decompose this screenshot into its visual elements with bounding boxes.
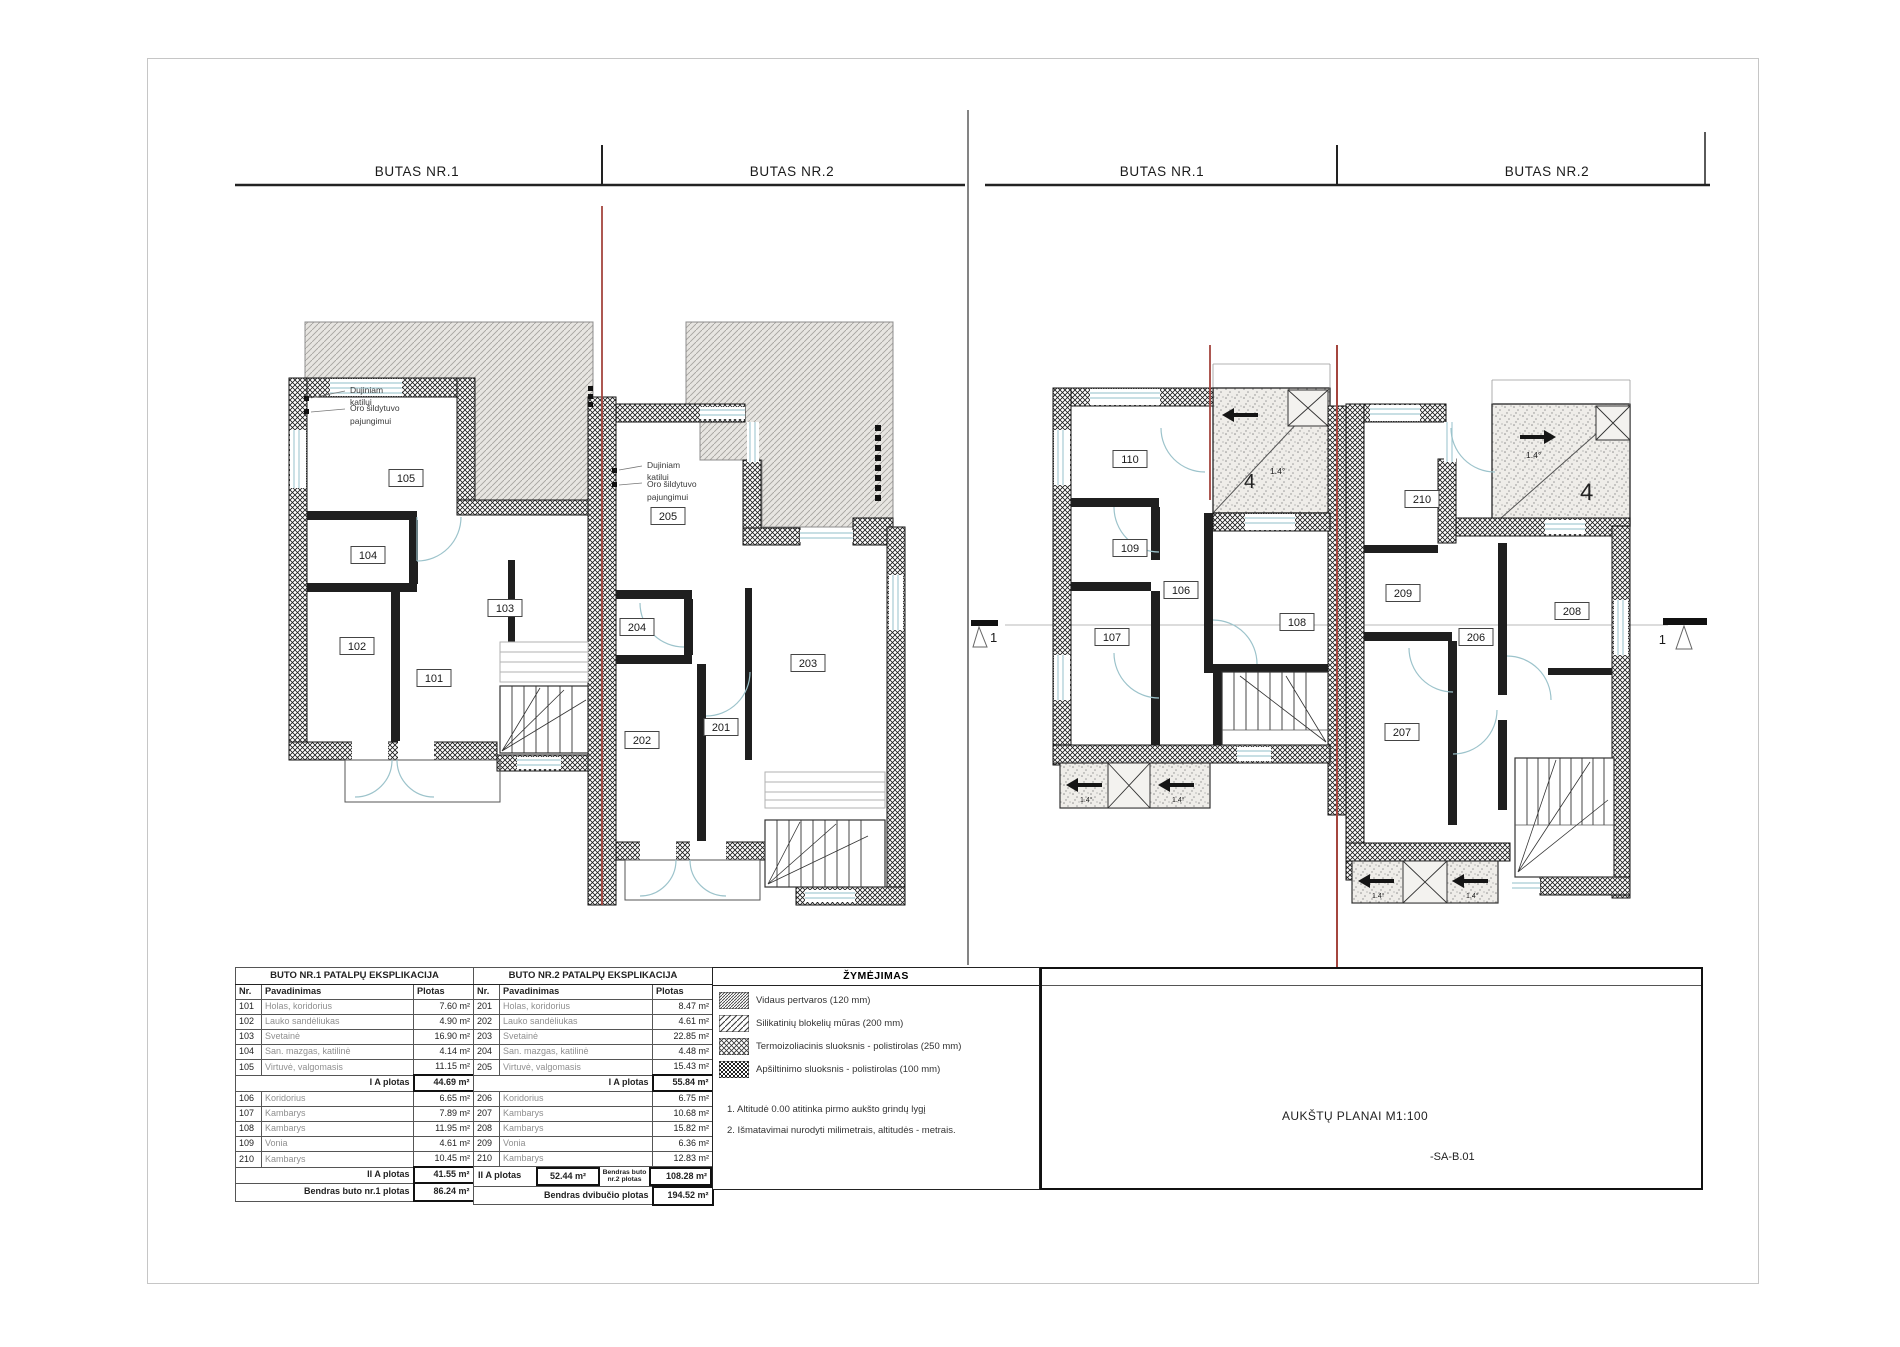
- cell-name: Svetainė: [262, 1030, 414, 1045]
- legend-label: Silikatinių blokelių mūras (200 mm): [756, 1018, 903, 1029]
- drawing-code: -SA-B.01: [1430, 1151, 1475, 1163]
- drawing-title: AUKŠTŲ PLANAI M1:100: [1282, 1109, 1428, 1123]
- cell-area: 22.85 m²: [653, 1030, 713, 1045]
- cell-name: Kambarys: [500, 1122, 653, 1137]
- table-row: 101Holas, koridorius7.60 m²: [236, 1000, 474, 1015]
- table-row: 103Svetainė16.90 m²: [236, 1030, 474, 1045]
- cell-nr: 102: [236, 1015, 262, 1030]
- cell-area: 6.65 m²: [414, 1091, 474, 1107]
- table-row: 202Lauko sandėliukas4.61 m²: [474, 1015, 713, 1030]
- col-header-area: Plotas: [414, 985, 474, 1000]
- total2-value: 108.28 m²: [649, 1167, 712, 1186]
- cell-nr: 201: [474, 1000, 500, 1015]
- partition-hatch-icon: [719, 992, 749, 1009]
- explication-table-unit2: BUTO NR.2 PATALPŲ EKSPLIKACIJA Nr. Pavad…: [473, 967, 714, 1206]
- cell-area: 11.95 m²: [414, 1122, 474, 1137]
- cell-area: 4.61 m²: [414, 1137, 474, 1152]
- cell-name: Koridorius: [262, 1091, 414, 1107]
- cell-area: 4.48 m²: [653, 1045, 713, 1060]
- table-row: 210Kambarys10.45 m²: [236, 1152, 474, 1168]
- cell-nr: 105: [236, 1060, 262, 1076]
- cell-name: Lauko sandėliukas: [500, 1015, 653, 1030]
- table-total-row: Bendras buto nr.1 plotas86.24 m²: [236, 1183, 474, 1201]
- table-row: 210Kambarys12.83 m²: [474, 1152, 713, 1167]
- cell-area: 7.60 m²: [414, 1000, 474, 1015]
- col-header-nr: Nr.: [236, 985, 262, 1000]
- cell-area: 8.47 m²: [653, 1000, 713, 1015]
- cell-nr: 208: [474, 1122, 500, 1137]
- table-row: 206Koridorius6.75 m²: [474, 1091, 713, 1107]
- cell-nr: 108: [236, 1122, 262, 1137]
- masonry-hatch-icon: [719, 1015, 749, 1032]
- legend-label: Apšiltinimo sluoksnis - polistirolas (10…: [756, 1064, 940, 1075]
- cell-area: 16.90 m²: [414, 1030, 474, 1045]
- total-value: 86.24 m²: [414, 1183, 474, 1201]
- cell-name: Virtuvė, valgomasis: [262, 1060, 414, 1076]
- total2-label: Bendras buto nr.2 plotas: [600, 1167, 649, 1186]
- table-sum-row: I A plotas44.69 m²: [236, 1075, 474, 1091]
- cell-name: Holas, koridorius: [500, 1000, 653, 1015]
- cell-nr: 109: [236, 1137, 262, 1152]
- cell-nr: 203: [474, 1030, 500, 1045]
- cell-nr: 104: [236, 1045, 262, 1060]
- legend-item: Vidaus pertvaros (120 mm): [719, 991, 1039, 1009]
- cell-name: Svetainė: [500, 1030, 653, 1045]
- note-dimensions: 2. Išmatavimai nurodyti milimetrais, alt…: [727, 1125, 1039, 1136]
- legend: ŽYMĖJIMAS Vidaus pertvaros (120 mm) Sili…: [712, 967, 1040, 1190]
- cell-nr: 106: [236, 1091, 262, 1107]
- col-header-nr: Nr.: [474, 985, 500, 1000]
- cell-name: Virtuvė, valgomasis: [500, 1060, 653, 1076]
- table-row: 207Kambarys10.68 m²: [474, 1107, 713, 1122]
- sum-value: 52.44 m²: [536, 1167, 600, 1186]
- col-header-area: Plotas: [653, 985, 713, 1000]
- cell-area: 7.89 m²: [414, 1107, 474, 1122]
- cell-name: Kambarys: [262, 1107, 414, 1122]
- cell-nr: 210: [474, 1152, 500, 1167]
- note-altitude: 1. Altitudė 0.00 atitinka pirmo aukšto g…: [727, 1104, 1039, 1115]
- cell-name: Kambarys: [262, 1122, 414, 1137]
- sum-label: I A plotas: [474, 1075, 653, 1091]
- cell-name: Vonia: [500, 1137, 653, 1152]
- cell-nr: 206: [474, 1091, 500, 1107]
- cell-nr: 103: [236, 1030, 262, 1045]
- table-row: 107Kambarys7.89 m²: [236, 1107, 474, 1122]
- table-row: 108Kambarys11.95 m²: [236, 1122, 474, 1137]
- cell-area: 6.36 m²: [653, 1137, 713, 1152]
- cell-name: Kambarys: [262, 1152, 414, 1168]
- cell-nr: 207: [474, 1107, 500, 1122]
- table-row: 106Koridorius6.65 m²: [236, 1091, 474, 1107]
- cell-area: 15.82 m²: [653, 1122, 713, 1137]
- table-total-row: Bendras dvibučio plotas194.52 m²: [474, 1187, 713, 1205]
- cell-nr: 202: [474, 1015, 500, 1030]
- legend-item: Apšiltinimo sluoksnis - polistirolas (10…: [719, 1060, 1039, 1078]
- legend-notes: 1. Altitudė 0.00 atitinka pirmo aukšto g…: [727, 1104, 1039, 1136]
- table-sum-row: II A plotas41.55 m²: [236, 1167, 474, 1183]
- cell-area: 4.61 m²: [653, 1015, 713, 1030]
- grand-label: Bendras dvibučio plotas: [474, 1187, 653, 1205]
- cell-name: San. mazgas, katilinė: [500, 1045, 653, 1060]
- legend-item: Silikatinių blokelių mūras (200 mm): [719, 1014, 1039, 1032]
- cell-name: Koridorius: [500, 1091, 653, 1107]
- table-row: 104San. mazgas, katilinė4.14 m²: [236, 1045, 474, 1060]
- table-row: 109Vonia4.61 m²: [236, 1137, 474, 1152]
- table-row: 105Virtuvė, valgomasis11.15 m²: [236, 1060, 474, 1076]
- table-row: 205Virtuvė, valgomasis15.43 m²: [474, 1060, 713, 1076]
- table-row: 209Vonia6.36 m²: [474, 1137, 713, 1152]
- legend-label: Vidaus pertvaros (120 mm): [756, 995, 870, 1006]
- cell-name: Lauko sandėliukas: [262, 1015, 414, 1030]
- sum-value: 44.69 m²: [414, 1075, 474, 1091]
- cell-nr: 210: [236, 1152, 262, 1168]
- cell-area: 12.83 m²: [653, 1152, 713, 1167]
- table-sum-row: I A plotas55.84 m²: [474, 1075, 713, 1091]
- table-row: 204San. mazgas, katilinė4.48 m²: [474, 1045, 713, 1060]
- cell-area: 15.43 m²: [653, 1060, 713, 1076]
- thermal-hatch-icon: [719, 1038, 749, 1055]
- cell-nr: 107: [236, 1107, 262, 1122]
- cell-nr: 101: [236, 1000, 262, 1015]
- explication-table-unit1: BUTO NR.1 PATALPŲ EKSPLIKACIJA Nr. Pavad…: [235, 967, 475, 1202]
- table-row: 201Holas, koridorius8.47 m²: [474, 1000, 713, 1015]
- cell-name: Holas, koridorius: [262, 1000, 414, 1015]
- title-block-strip: [1042, 969, 1701, 986]
- table-title: BUTO NR.1 PATALPŲ EKSPLIKACIJA: [236, 968, 474, 985]
- cell-area: 4.14 m²: [414, 1045, 474, 1060]
- col-header-name: Pavadinimas: [500, 985, 653, 1000]
- cell-area: 10.45 m²: [414, 1152, 474, 1168]
- sum-value: 55.84 m²: [653, 1075, 713, 1091]
- cell-nr: 209: [474, 1137, 500, 1152]
- cell-area: 11.15 m²: [414, 1060, 474, 1076]
- table-title: BUTO NR.2 PATALPŲ EKSPLIKACIJA: [474, 968, 713, 985]
- cell-nr: 204: [474, 1045, 500, 1060]
- table-sum-row: II A plotas 52.44 m² Bendras buto nr.2 p…: [474, 1167, 713, 1187]
- legend-label: Termoizoliacinis sluoksnis - polistirola…: [756, 1041, 961, 1052]
- grand-value: 194.52 m²: [653, 1187, 713, 1205]
- cell-area: 4.90 m²: [414, 1015, 474, 1030]
- sum-label: II A plotas: [236, 1167, 414, 1183]
- table-row: 203Svetainė22.85 m²: [474, 1030, 713, 1045]
- cell-nr: 205: [474, 1060, 500, 1076]
- legend-title: ŽYMĖJIMAS: [713, 968, 1039, 986]
- table-row: 208Kambarys15.82 m²: [474, 1122, 713, 1137]
- cell-name: Kambarys: [500, 1152, 653, 1167]
- insulation-hatch-icon: [719, 1061, 749, 1078]
- cell-name: San. mazgas, katilinė: [262, 1045, 414, 1060]
- cell-name: Kambarys: [500, 1107, 653, 1122]
- cell-area: 10.68 m²: [653, 1107, 713, 1122]
- table-row: 102Lauko sandėliukas4.90 m²: [236, 1015, 474, 1030]
- cell-area: 6.75 m²: [653, 1091, 713, 1107]
- col-header-name: Pavadinimas: [262, 985, 414, 1000]
- sum-value: 41.55 m²: [414, 1167, 474, 1183]
- total-label: Bendras buto nr.1 plotas: [236, 1183, 414, 1201]
- sum-label: I A plotas: [236, 1075, 414, 1091]
- legend-item: Termoizoliacinis sluoksnis - polistirola…: [719, 1037, 1039, 1055]
- title-block: AUKŠTŲ PLANAI M1:100 -SA-B.01: [1040, 967, 1703, 1190]
- cell-name: Vonia: [262, 1137, 414, 1152]
- sum-label: II A plotas: [474, 1167, 536, 1186]
